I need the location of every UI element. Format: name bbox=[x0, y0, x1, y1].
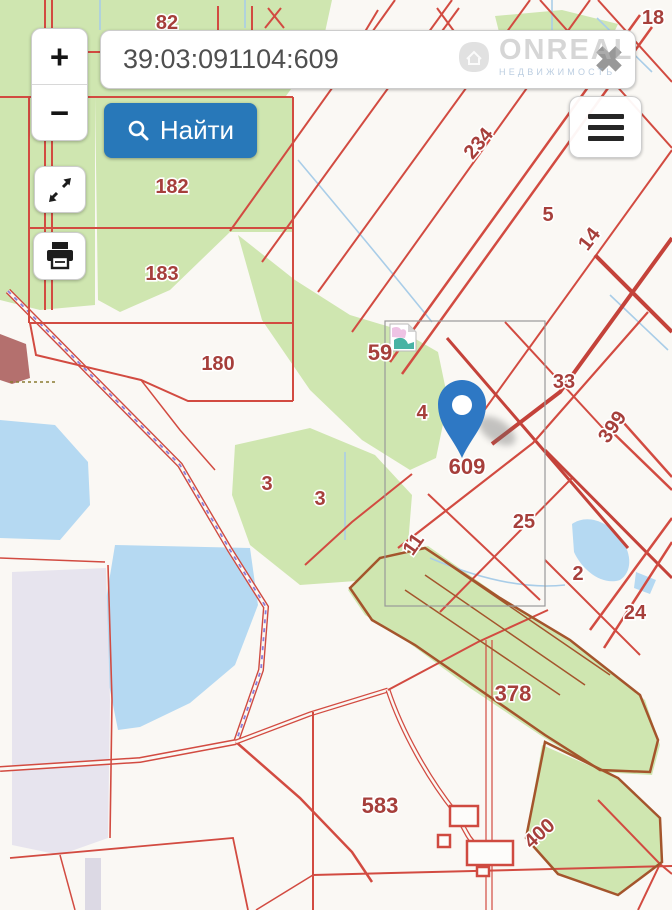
search-input[interactable]: 39:03:091104:609 bbox=[101, 44, 583, 75]
parcel-label-24: 24 bbox=[624, 602, 647, 624]
parcel-label-609: 609 bbox=[449, 454, 486, 479]
find-button[interactable]: Найти bbox=[104, 103, 257, 158]
parcel-label-33: 33 bbox=[553, 371, 575, 393]
zoom-in-button[interactable]: + bbox=[32, 29, 87, 84]
expand-arrows-icon bbox=[40, 172, 80, 208]
parcel-label-183: 183 bbox=[145, 263, 178, 285]
parcel-label-4: 4 bbox=[416, 402, 428, 424]
parcel-label-182: 182 bbox=[155, 176, 188, 198]
fullscreen-button[interactable] bbox=[34, 166, 86, 213]
parcel-label-3b: 3 bbox=[314, 488, 325, 510]
parcel-label-180: 180 bbox=[201, 353, 234, 375]
find-button-label: Найти bbox=[160, 115, 234, 146]
parcel-label-2: 2 bbox=[572, 563, 583, 585]
map-app: 82 18 234 5 14 182 183 180 59 4 33 399 6… bbox=[0, 0, 672, 910]
hamburger-icon bbox=[588, 114, 624, 119]
search-bar[interactable]: 39:03:091104:609 ✖ bbox=[100, 30, 636, 89]
parcel-label-583: 583 bbox=[362, 793, 399, 818]
search-icon bbox=[127, 119, 150, 142]
parcel-label-5: 5 bbox=[542, 204, 553, 226]
parcel-label-18: 18 bbox=[642, 7, 664, 29]
zoom-control: + − bbox=[31, 28, 88, 141]
printer-icon bbox=[43, 240, 77, 272]
gray-strip bbox=[85, 858, 101, 910]
clear-search-icon[interactable]: ✖ bbox=[583, 42, 635, 78]
parcel-label-378: 378 bbox=[495, 681, 532, 706]
zoom-out-button[interactable]: − bbox=[32, 85, 87, 140]
parcel-label-3a: 3 bbox=[261, 473, 272, 495]
parcel-label-25: 25 bbox=[513, 511, 535, 533]
settlement-area bbox=[12, 568, 110, 855]
print-button[interactable] bbox=[33, 232, 86, 280]
menu-button[interactable] bbox=[569, 96, 642, 158]
parcel-label-59: 59 bbox=[368, 340, 392, 365]
broken-image-icon bbox=[390, 324, 416, 351]
